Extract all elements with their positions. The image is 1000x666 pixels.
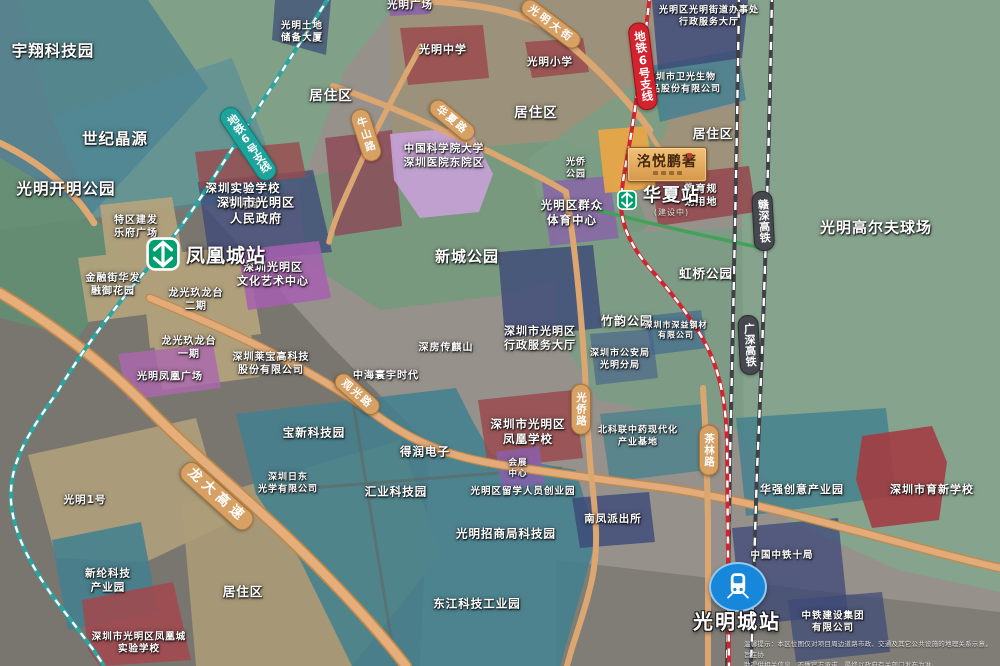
- label-guangming-middle-school: 光明中学: [419, 43, 467, 57]
- label-juzhuqu-1: 居住区: [309, 88, 353, 106]
- label-renmin-gov: 深圳市光明区人民政府: [217, 195, 295, 226]
- station-fenghuangcheng: 凤凰城站: [146, 237, 266, 271]
- label-crec-10th-bureau: 中国中铁十局: [750, 550, 813, 562]
- label-road-huaxia: 华夏路: [426, 96, 479, 144]
- seal-icon: [687, 153, 692, 158]
- label-guangming-plaza: 光明广场: [387, 0, 433, 13]
- label-guangqiao-park: 光侨公园: [566, 157, 586, 180]
- train-icon: [720, 569, 756, 605]
- label-qunzhong-sports-center: 光明区群众体育中心: [541, 198, 604, 228]
- label-convention-center: 会展中心: [508, 458, 527, 480]
- label-fenghuang-plaza: 光明凤凰广场: [137, 371, 203, 384]
- label-kaiming-park: 光明开明公园: [16, 179, 115, 199]
- station-guangmingcheng-label: 光明城站: [693, 606, 781, 635]
- label-dongjiang-industry-park: 东江科技工业园: [433, 597, 521, 612]
- label-juzhuqu-2: 居住区: [514, 105, 558, 123]
- label-crcc-group: 中铁建设集团有限公司: [801, 611, 864, 636]
- label-road-guangqiao: 光侨路: [571, 384, 591, 435]
- map-labels-layer: 宇翔科技园世纪晶源光明开明公园光明土地储备大厦居住区居住区居住区居住区光明广场光…: [0, 0, 1000, 666]
- label-jiulongtai-1: 龙光玖龙台一期: [162, 335, 217, 361]
- label-zhaoshang-tech-park: 光明招商局科技园: [456, 527, 556, 542]
- metro-logo-icon: [617, 190, 637, 210]
- label-jiulongtai-2: 龙光玖龙台二期: [169, 287, 224, 313]
- label-cas-univ-hospital: 中国科学院大学深圳医院东院区: [404, 142, 485, 169]
- label-hongqiao-park: 虹桥公园: [679, 266, 733, 282]
- label-beikelian-pharma-base: 北科联中药现代化产业基地: [598, 425, 678, 448]
- label-road-guangming-street: 光明大街: [518, 0, 585, 52]
- label-yuxiang-tech-park: 宇翔科技园: [12, 41, 95, 61]
- label-shiji-jingyuan: 世纪晶源: [82, 129, 148, 149]
- label-yuxin-school: 深圳市育新学校: [890, 483, 974, 497]
- project-plaque: 洺悦鹏著: [627, 147, 707, 182]
- label-huiye-tech-park: 汇业科技园: [365, 485, 428, 500]
- label-rongyu-garden: 金融街华发融御花园: [86, 272, 141, 298]
- metro-logo-icon: [146, 237, 180, 271]
- label-road-chalin: 茶林路: [699, 425, 719, 476]
- station-guangmingcheng-marker: [709, 562, 767, 612]
- label-tudi-chubei-tower: 光明土地储备大厦: [281, 21, 323, 46]
- label-laibao-hightech: 深圳莱宝高科技股份有限公司: [233, 351, 310, 377]
- label-juzhuqu-3: 居住区: [693, 126, 734, 142]
- label-metro-line6-branch-west: 地铁6号支线: [216, 103, 280, 184]
- disclaimer: 温馨提示：本区位图仅对项目周边道路市政、交通及其它公共设施的地理关系示意，旨在协…: [744, 639, 996, 666]
- plaque-subtext: [653, 171, 682, 175]
- label-derun-electronics: 得润电子: [400, 445, 450, 460]
- label-huaqiang-creative-park: 华强创意产业园: [760, 483, 844, 497]
- station-huaxia-label: 华夏站: [643, 181, 700, 207]
- label-nanfeng-police: 南凤派出所: [584, 513, 642, 527]
- disclaimer-line2: 助提供相关信息，不做官方承诺，最终以政府有关部门发布为准。: [744, 660, 996, 666]
- label-admin-service-hall: 深圳市光明区行政服务大厅: [504, 325, 576, 354]
- label-public-security-bureau: 深圳市公安局光明分局: [590, 348, 650, 371]
- label-chuanqishan: 深房传麒山: [419, 342, 474, 355]
- label-road-longda-expressway: 龙大高速: [176, 458, 257, 534]
- label-ganshen-hsr: 赣深高铁: [751, 191, 775, 252]
- label-guangming-primary-school: 光明小学: [527, 56, 573, 70]
- disclaimer-line1: 温馨提示：本区位图仅对项目周边道路市政、交通及其它公共设施的地理关系示意，旨在协: [744, 639, 996, 660]
- label-xinlun-tech-park: 新纶科技产业园: [85, 567, 131, 594]
- label-golf-course: 光明高尔夫球场: [820, 218, 932, 238]
- label-metro-line6-branch-east: 地铁6号支线: [627, 21, 659, 110]
- label-baoxin-tech-park: 宝新科技园: [283, 426, 346, 441]
- map-canvas[interactable]: 宇翔科技园世纪晶源光明开明公园光明土地储备大厦居住区居住区居住区居住区光明广场光…: [0, 0, 1000, 666]
- label-fenghuangcheng-exp-school: 深圳市光明区凤凰城实验学校: [92, 632, 187, 657]
- label-shenyi-steel: 深圳市深益钢材有限公司: [645, 321, 708, 342]
- label-xincheng-park: 新城公园: [435, 247, 499, 267]
- station-huaxia-status: (建设中): [654, 207, 689, 218]
- label-fenghuang-school: 深圳市光明区凤凰学校: [491, 417, 566, 447]
- station-fenghuangcheng-label: 凤凰城站: [186, 241, 266, 268]
- label-liuxue-startup-park: 光明区留学人员创业园: [470, 486, 575, 498]
- label-juzhuqu-4: 居住区: [223, 584, 264, 600]
- label-jiedao-office: 光明区光明街道办事处行政服务大厅: [659, 5, 759, 28]
- label-guangming-no1: 光明1号: [64, 494, 107, 508]
- station-huaxia: 华夏站 (建设中): [617, 181, 700, 218]
- label-zhonghai-huanyu: 中海寰宇时代: [353, 370, 419, 383]
- label-guangshen-hsr: 广深高铁: [737, 315, 761, 376]
- label-road-niushan: 牛山路: [348, 106, 384, 163]
- label-nitto-optics: 深圳日东光学有限公司: [258, 472, 318, 495]
